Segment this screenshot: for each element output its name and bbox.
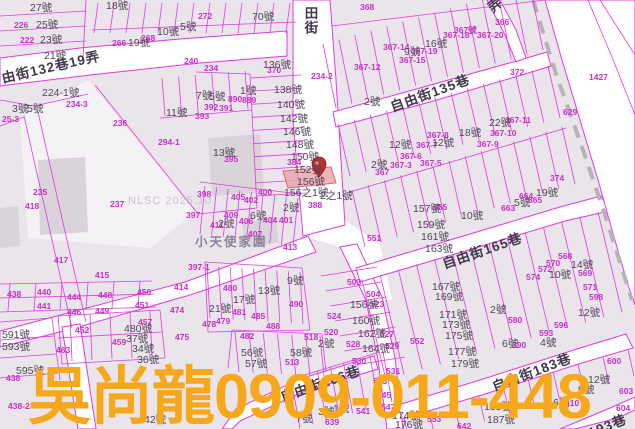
house-number-label: 159號 — [417, 220, 445, 231]
house-number-label: 157號 — [413, 204, 441, 215]
parcel-number-label: 25-3 — [2, 115, 19, 124]
house-number-label: 12號 — [578, 308, 600, 319]
parcel-number-label: 449 — [95, 307, 109, 316]
house-number-label: 136號 — [263, 60, 291, 71]
house-number-label: 19號 — [536, 188, 558, 199]
parcel-number-label: 234-3 — [66, 100, 88, 109]
house-number-label: 2號 — [371, 160, 387, 171]
house-number-label: 140號 — [277, 100, 305, 111]
house-number-label: 10號 — [549, 270, 571, 281]
house-number-label: 5號 — [180, 22, 196, 33]
house-number-label: 1號 — [240, 86, 256, 97]
parcel-number-label: 580 — [508, 316, 522, 325]
parcel-number-label: 294-1 — [158, 138, 180, 147]
house-number-label: 18號 — [459, 128, 481, 139]
parcel-number-label: 366 — [495, 18, 509, 27]
parcel-number-label: 240 — [184, 57, 198, 66]
parcel-number-label: 482 — [240, 332, 254, 341]
house-number-label: 224-1號 — [42, 88, 79, 99]
street-name-label: 田街 — [303, 6, 317, 35]
house-number-label: 6號 — [250, 211, 266, 222]
house-number-label: 13號 — [213, 148, 235, 159]
parcel-number-label: 414 — [174, 283, 188, 292]
parcel-number-label: 388 — [308, 201, 322, 210]
parcel-number-label: 367-10 — [490, 129, 516, 138]
parcel-number-label: 478 — [202, 320, 216, 329]
house-number-label: 17號 — [233, 295, 255, 306]
house-number-label: 161號 — [421, 232, 449, 243]
parcel-number-label: 391 — [219, 104, 233, 113]
house-number-label: 5號 — [209, 92, 225, 103]
parcel-number-label: 266 — [112, 39, 126, 48]
house-number-label: 10號 — [157, 27, 179, 38]
parcel-number-label: 417 — [54, 256, 68, 265]
house-number-label: 18號 — [106, 1, 128, 12]
house-number-label: 138號 — [274, 85, 302, 96]
parcel-number-label: 629 — [563, 108, 577, 117]
parcel-number-label: 234 — [204, 64, 218, 73]
parcel-number-label: 368 — [360, 3, 374, 12]
parcel-number-label: 405 — [231, 193, 245, 202]
contact-watermark: 吳尚龍0909-011-448 — [28, 346, 591, 429]
house-number-label: 14號 — [571, 260, 593, 271]
parcel-number-label: 372 — [510, 68, 524, 77]
parcel-number-label: 235 — [33, 188, 47, 197]
parcel-number-label: 518 — [304, 333, 318, 342]
parcel-number-label: 367號 — [454, 26, 477, 35]
house-number-label: 148號 — [286, 140, 314, 151]
nlsc-watermark: NLSC 2025.10 — [128, 196, 212, 207]
parcel-number-label: 441 — [37, 302, 51, 311]
house-number-label: 5號 — [27, 104, 43, 115]
house-number-label: 9號 — [287, 276, 303, 287]
parcel-number-label: 551 — [367, 234, 381, 243]
house-number-label: 5號 — [514, 198, 530, 209]
house-number-label: 150號 — [291, 152, 319, 163]
parcel-number-label: 237 — [110, 200, 124, 209]
parcel-number-label: 451 — [135, 301, 149, 310]
parcel-number-label: 1427 — [589, 73, 608, 82]
parcel-number-label: 490 — [289, 300, 303, 309]
parcel-number-label: 603 — [619, 387, 633, 396]
parcel-number-label: 485 — [251, 312, 265, 321]
parcel-number-label: 438 — [7, 290, 21, 299]
parcel-number-label: 272 — [198, 12, 212, 21]
parcel-number-label: 397 — [186, 211, 200, 220]
parcel-number-label: 552 — [410, 337, 424, 346]
house-number-label: 175號 — [445, 331, 473, 342]
house-number-label: 173號 — [442, 320, 470, 331]
parcel-number-label: 367-12 — [354, 63, 380, 72]
house-number-label: 152號 — [294, 165, 322, 176]
house-number-label: 156號 — [350, 300, 378, 311]
parcel-number-label: 524 — [327, 312, 341, 321]
house-number-label: 22號 — [489, 118, 511, 129]
house-number-label: 10號 — [461, 211, 483, 222]
parcel-number-label: 574 — [526, 273, 540, 282]
street-name-label: 自由街165巷 — [441, 231, 524, 271]
parcel-number-label: 596 — [554, 321, 568, 330]
place-label: 小天使家園 — [195, 236, 268, 249]
parcel-number-label: 446 — [67, 308, 81, 317]
parcel-number-label: 889 — [242, 96, 256, 105]
house-number-label: 13號 — [258, 286, 280, 297]
house-number-label: 3號 — [12, 104, 28, 115]
parcel-number-label: 401 — [279, 216, 293, 225]
house-number-label: 2號 — [218, 219, 234, 230]
house-number-label: 21號 — [209, 304, 231, 315]
house-number-label: 25號 — [36, 20, 58, 31]
house-number-label: 23號 — [40, 35, 62, 46]
parcel-number-label: 452 — [75, 326, 89, 335]
street-name-label: 193巷 — [586, 412, 628, 429]
parcel-number-label: 367-5 — [420, 159, 442, 168]
parcel-number-label: 571 — [583, 283, 597, 292]
parcel-number-label: 475 — [175, 333, 189, 342]
parcel-number-label: 367-9 — [477, 140, 499, 149]
street-name-label: 自由街135巷 — [389, 73, 472, 114]
house-number-label: 156號 — [297, 177, 325, 188]
parcel-number-label: 444 — [67, 293, 81, 302]
street-name-label: 弄 — [486, 0, 506, 15]
parcel-number-label: 367-20 — [477, 31, 503, 40]
house-number-label: 12號 — [432, 138, 454, 149]
parcel-number-label: 600 — [607, 357, 621, 366]
parcel-number-label: 222 — [20, 36, 34, 45]
parcel-number-label: 397-1 — [188, 263, 210, 272]
parcel-number-label: 479 — [216, 317, 230, 326]
parcel-number-label: 598 — [589, 293, 603, 302]
parcel-number-label: 413 — [283, 243, 297, 252]
parcel-number-label: 488 — [266, 322, 280, 331]
house-number-label: 9號 — [404, 47, 420, 58]
house-number-label: 2號 — [490, 305, 506, 316]
house-number-label: 2號 — [364, 97, 380, 108]
parcel-number-label: 226 — [14, 21, 28, 30]
parcel-number-label: 402 — [244, 196, 258, 205]
parcel-number-label: 448 — [98, 291, 112, 300]
house-number-label: 16號 — [425, 39, 447, 50]
house-number-label: 593號 — [2, 342, 30, 353]
parcel-number-label: 415 — [95, 271, 109, 280]
house-number-label: 160號 — [352, 316, 380, 327]
house-number-label: 12號 — [389, 140, 411, 151]
parcel-number-label: 400 — [258, 188, 272, 197]
parcel-number-label: 480 — [223, 284, 237, 293]
house-number-label: 162號 — [358, 329, 386, 340]
parcel-number-label: 474 — [170, 306, 184, 315]
house-number-label: 11號 — [166, 108, 187, 119]
parcel-number-label: 481 — [232, 308, 246, 317]
parcel-number-label: 450 — [137, 288, 151, 297]
house-number-label: 19號 — [128, 38, 150, 49]
house-number-label: 27號 — [30, 3, 52, 14]
parcel-number-label: 520 — [324, 328, 338, 337]
house-number-label: 70號 — [252, 12, 274, 23]
parcel-number-label: 374 — [550, 174, 564, 183]
parcel-number-label: 234-2 — [311, 72, 333, 81]
parcel-number-label: 418 — [25, 202, 39, 211]
parcel-number-label: 236 — [113, 119, 127, 128]
parcel-number-label: 438-2 — [8, 402, 30, 411]
parcel-number-label: 367-3 — [390, 161, 412, 170]
parcel-number-label: 440 — [37, 288, 51, 297]
house-number-label: 591號 — [2, 330, 30, 341]
house-number-label: 142號 — [280, 114, 308, 125]
parcel-number-label: 393 — [195, 112, 209, 121]
house-number-label: 2之1號 — [320, 191, 353, 202]
map-canvas[interactable]: 22622225-3234-3234-226626827224023436836… — [0, 0, 635, 429]
house-number-label: 163號 — [425, 244, 453, 255]
parcel-number-label: 504 — [366, 290, 380, 299]
parcel-number-label: 367-6 — [400, 152, 422, 161]
house-number-label: 146號 — [283, 127, 311, 138]
house-number-label: 169號 — [435, 292, 463, 303]
parcel-number-label: 503 — [347, 278, 361, 287]
house-number-label: 2號 — [283, 203, 299, 214]
